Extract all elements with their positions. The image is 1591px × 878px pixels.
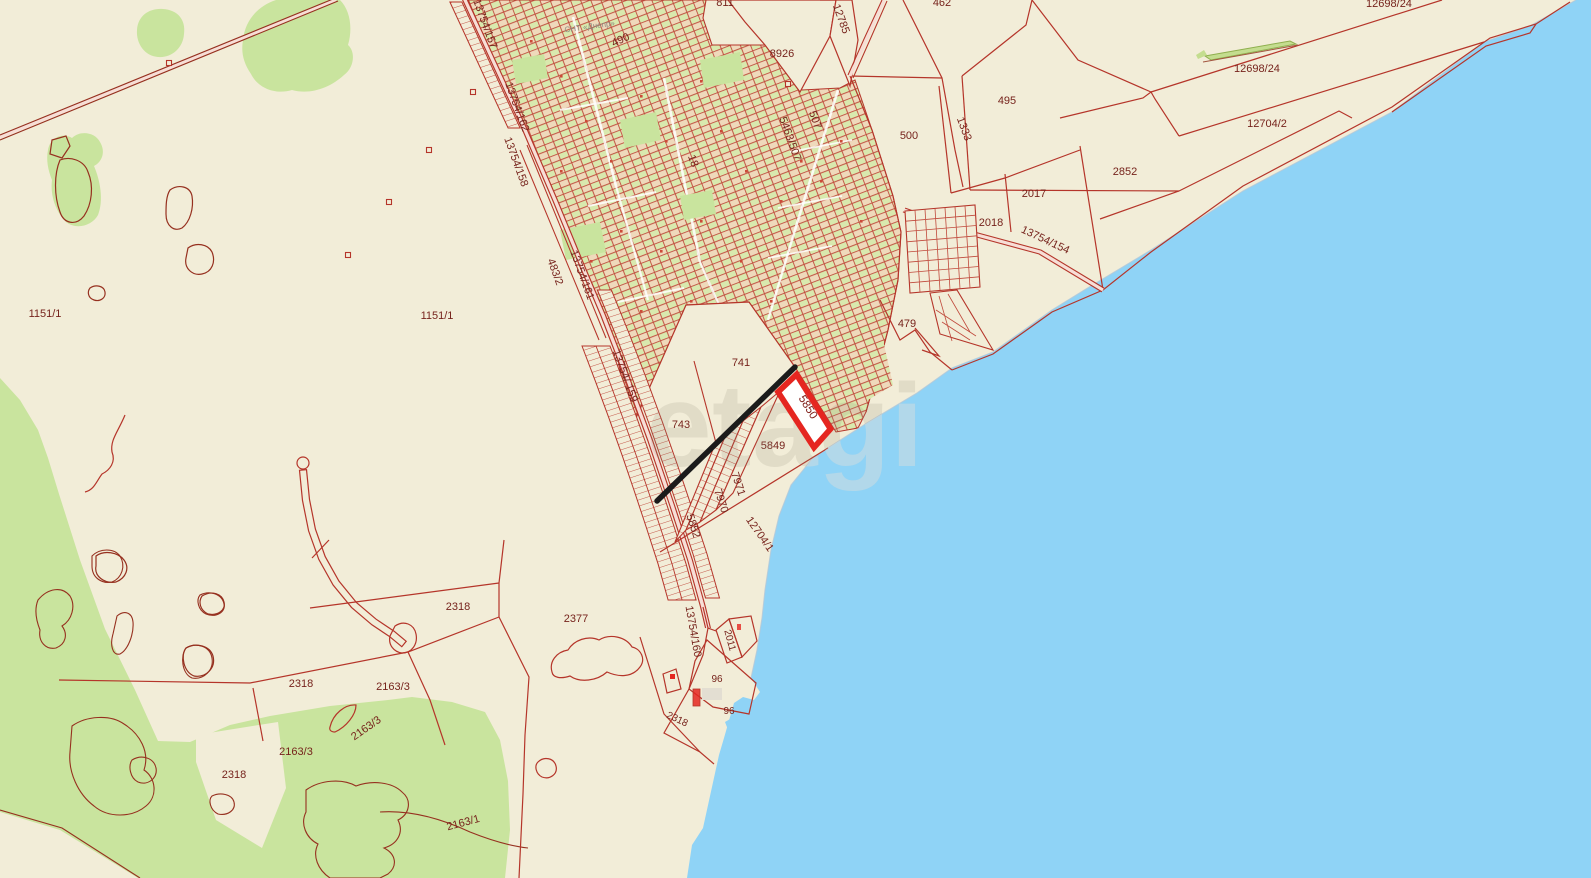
svg-text:2017: 2017 bbox=[1022, 188, 1046, 200]
svg-text:1151/1: 1151/1 bbox=[421, 310, 454, 322]
svg-text:2018: 2018 bbox=[979, 217, 1003, 229]
svg-text:96: 96 bbox=[711, 674, 723, 685]
svg-text:2377: 2377 bbox=[564, 613, 588, 625]
svg-text:2852: 2852 bbox=[1113, 166, 1137, 178]
svg-text:12704/2: 12704/2 bbox=[1247, 118, 1287, 130]
svg-text:2318: 2318 bbox=[289, 678, 313, 690]
svg-text:462: 462 bbox=[933, 0, 951, 9]
svg-text:12698/24: 12698/24 bbox=[1366, 0, 1412, 10]
svg-text:12698/24: 12698/24 bbox=[1234, 63, 1280, 75]
svg-text:2318: 2318 bbox=[222, 769, 246, 781]
svg-text:2163/3: 2163/3 bbox=[279, 746, 313, 758]
svg-text:495: 495 bbox=[998, 95, 1016, 107]
svg-text:811: 811 bbox=[716, 0, 734, 9]
svg-text:2163/3: 2163/3 bbox=[376, 681, 410, 693]
svg-text:1151/1: 1151/1 bbox=[29, 308, 62, 320]
svg-text:479: 479 bbox=[898, 318, 916, 330]
svg-text:2318: 2318 bbox=[446, 601, 470, 613]
svg-text:500: 500 bbox=[900, 130, 918, 142]
svg-text:8926: 8926 bbox=[770, 48, 794, 60]
svg-text:96: 96 bbox=[723, 706, 735, 717]
